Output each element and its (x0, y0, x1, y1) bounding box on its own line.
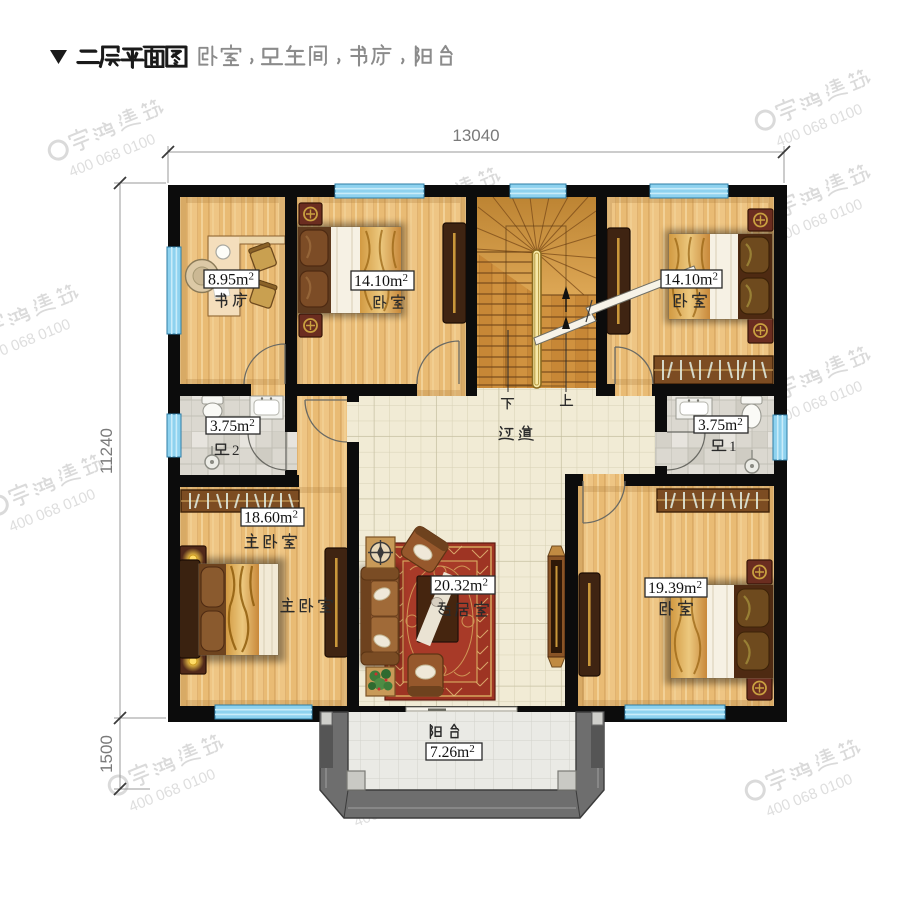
svg-text:3.75m2: 3.75m2 (698, 416, 743, 434)
svg-text:19.39m2: 19.39m2 (648, 579, 702, 597)
svg-text:20.32m2: 20.32m2 (434, 577, 488, 595)
svg-text:11240: 11240 (97, 428, 116, 474)
svg-text:13040: 13040 (452, 126, 499, 145)
svg-text:14.10m2: 14.10m2 (664, 271, 718, 289)
svg-text:7.26m2: 7.26m2 (430, 743, 475, 761)
svg-text:1: 1 (729, 439, 737, 455)
svg-text:18.60m2: 18.60m2 (244, 509, 298, 527)
svg-text:2: 2 (232, 443, 240, 459)
svg-text:8.95m2: 8.95m2 (208, 271, 254, 289)
svg-text:1500: 1500 (97, 735, 116, 773)
svg-text:3.75m2: 3.75m2 (210, 417, 255, 435)
svg-text:14.10m2: 14.10m2 (354, 272, 408, 290)
